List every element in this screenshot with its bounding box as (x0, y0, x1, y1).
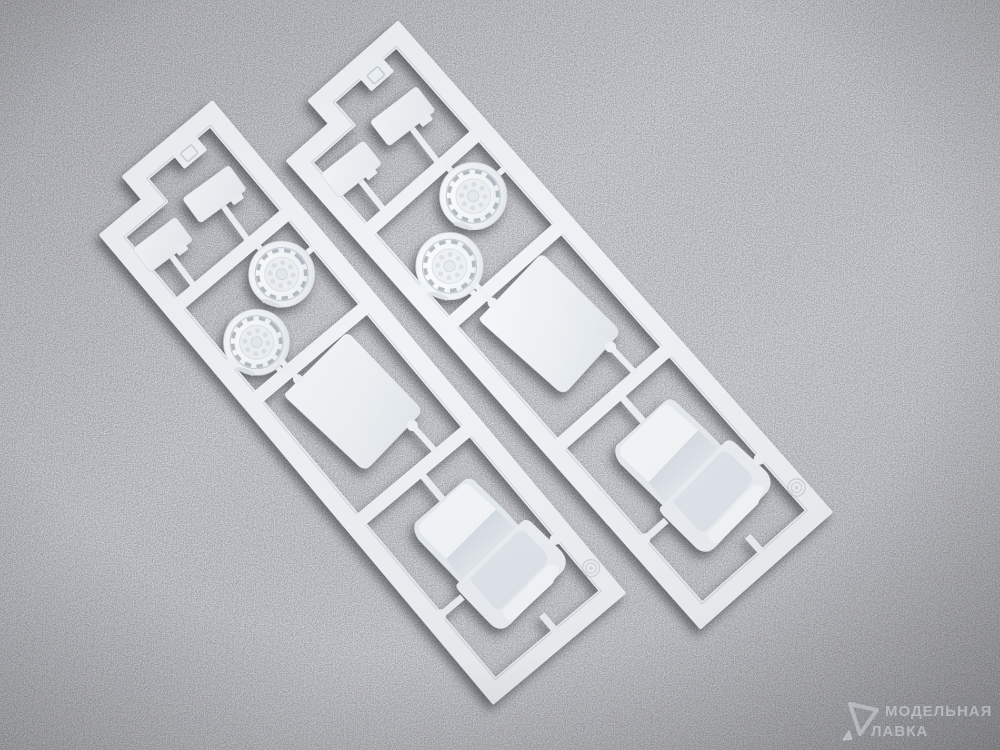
watermark-line1: МОДЕЛЬНАЯ (885, 703, 992, 720)
photo-of-model-kit-sprues: МОДЕЛЬНАЯ ЛАВКА (0, 0, 1000, 750)
watermark-line2: ЛАВКА (871, 723, 928, 740)
vignette-overlay (0, 0, 1000, 750)
sprue-photo-canvas: МОДЕЛЬНАЯ ЛАВКА (0, 0, 1000, 750)
